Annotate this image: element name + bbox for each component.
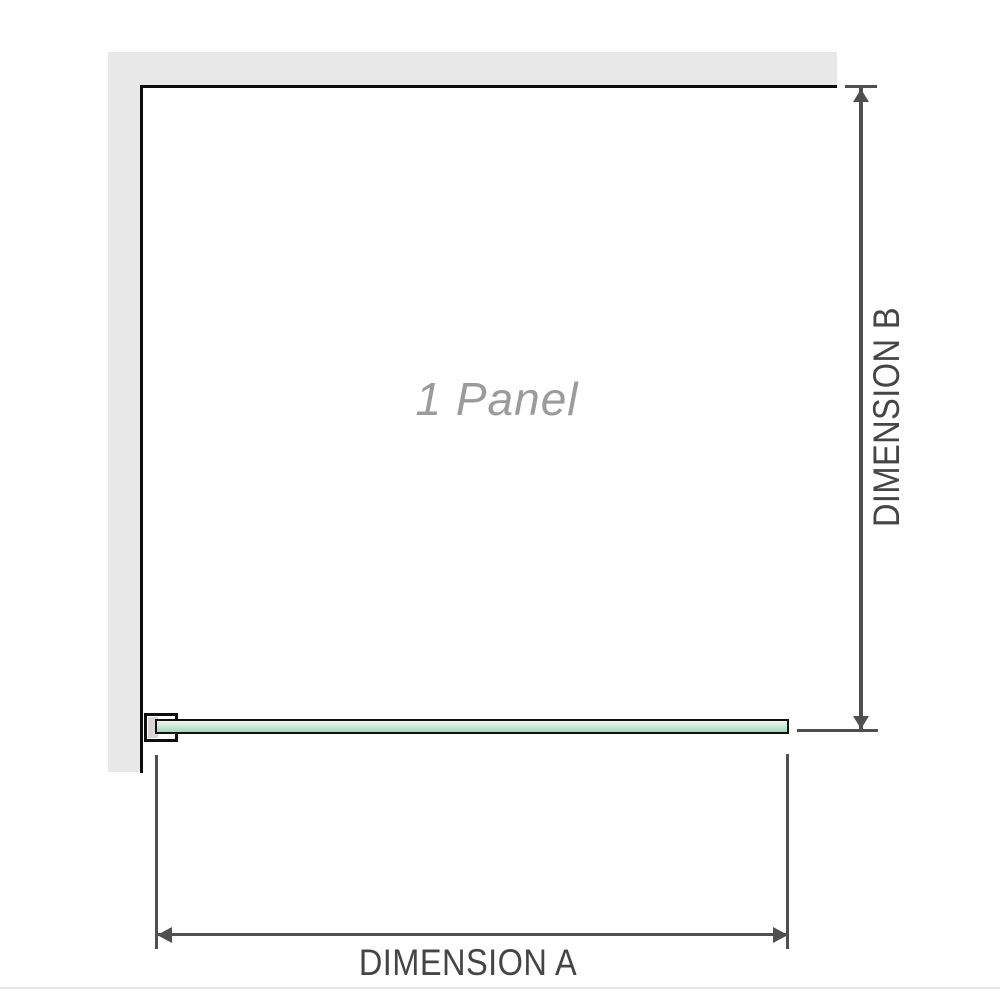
glass-panel xyxy=(155,719,789,734)
dimension-a-line xyxy=(157,933,788,936)
dimension-b-line xyxy=(859,88,863,730)
arrowhead-down-icon xyxy=(853,716,869,729)
arrowhead-right-icon xyxy=(773,927,788,943)
dimension-a-extension-left xyxy=(155,755,158,949)
dimension-b-bottom-tick xyxy=(797,729,878,732)
wall-inner-edge-top xyxy=(140,85,837,88)
bottom-divider xyxy=(0,987,1000,989)
wall-left xyxy=(108,52,140,772)
dimension-b-label: DIMENSION B xyxy=(866,307,908,527)
wall-inner-edge-left xyxy=(140,85,143,773)
shower-screen-diagram: 1 Panel DIMENSION B DIMENSION A xyxy=(0,0,1000,1000)
dimension-a-label: DIMENSION A xyxy=(359,942,577,984)
arrowhead-up-icon xyxy=(853,89,869,102)
dimension-a-extension-right xyxy=(786,754,789,949)
arrowhead-left-icon xyxy=(157,927,172,943)
wall-top xyxy=(108,52,837,87)
panel-count-label: 1 Panel xyxy=(415,372,578,426)
